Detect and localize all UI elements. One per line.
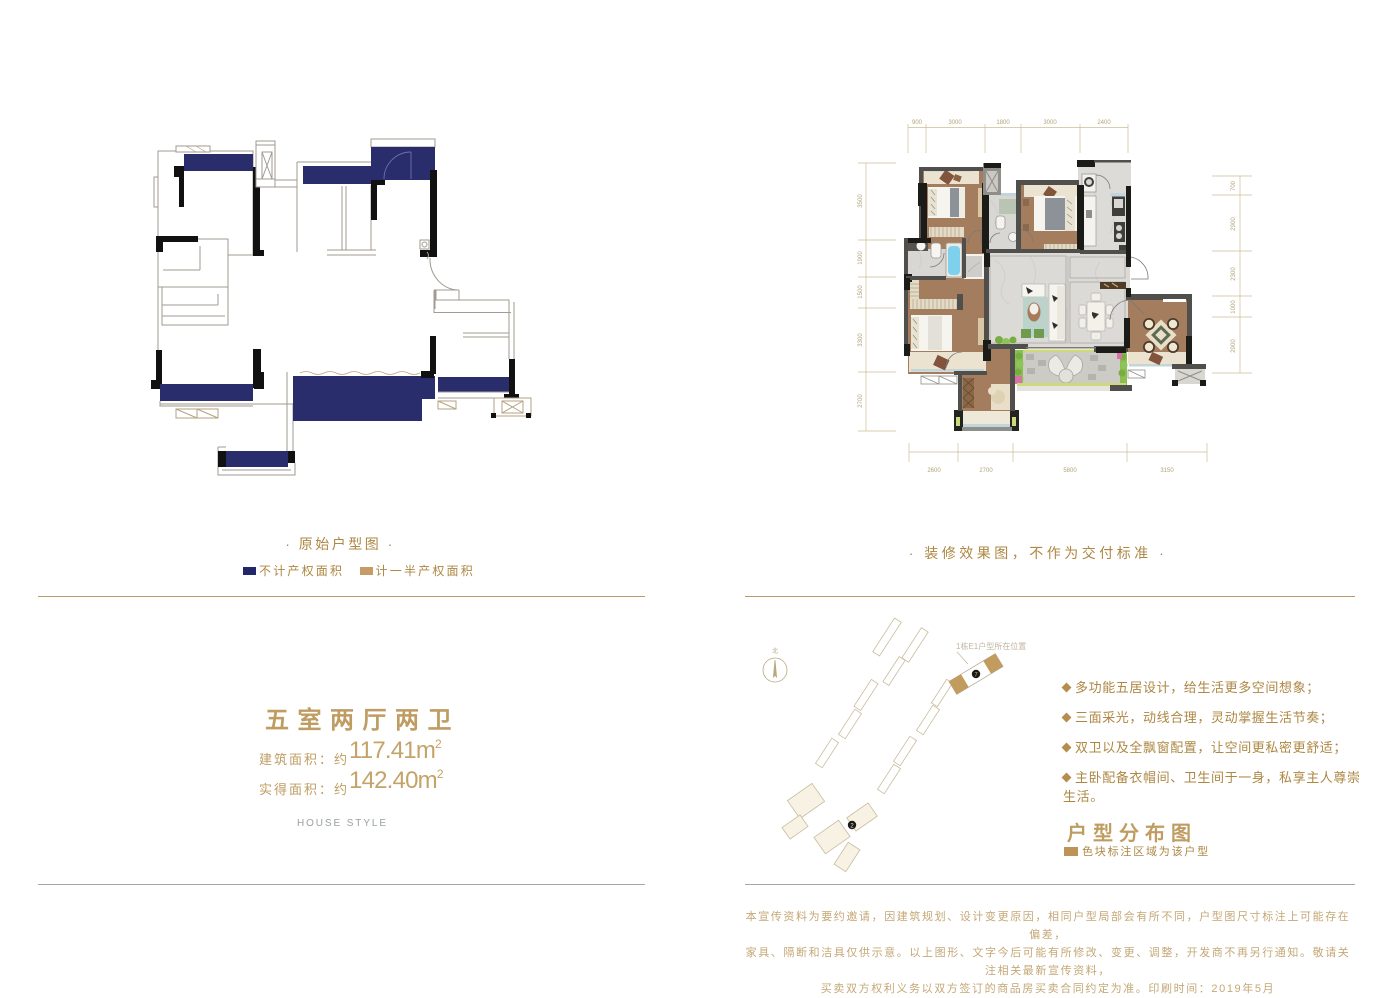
svg-text:2900: 2900: [1231, 217, 1237, 231]
svg-text:900: 900: [912, 120, 923, 126]
svg-text:1栋E1户型所在位置: 1栋E1户型所在位置: [956, 641, 1026, 651]
svg-text:2900: 2900: [1231, 339, 1237, 353]
svg-text:2400: 2400: [1097, 120, 1111, 126]
svg-text:1900: 1900: [858, 251, 864, 265]
svg-text:3000: 3000: [948, 120, 962, 126]
svg-text:3150: 3150: [1160, 468, 1174, 474]
svg-text:2700: 2700: [858, 394, 864, 408]
svg-text:3500: 3500: [858, 194, 864, 208]
svg-text:5800: 5800: [1063, 468, 1077, 474]
svg-text:3000: 3000: [1043, 120, 1057, 126]
svg-text:700: 700: [1231, 180, 1237, 191]
svg-text:2600: 2600: [927, 468, 941, 474]
svg-text:3300: 3300: [858, 333, 864, 347]
svg-text:1500: 1500: [858, 285, 864, 299]
svg-text:2300: 2300: [1231, 267, 1237, 281]
svg-text:北: 北: [772, 647, 778, 655]
svg-text:1800: 1800: [996, 120, 1010, 126]
svg-text:2700: 2700: [979, 468, 993, 474]
svg-text:1000: 1000: [1231, 300, 1237, 314]
